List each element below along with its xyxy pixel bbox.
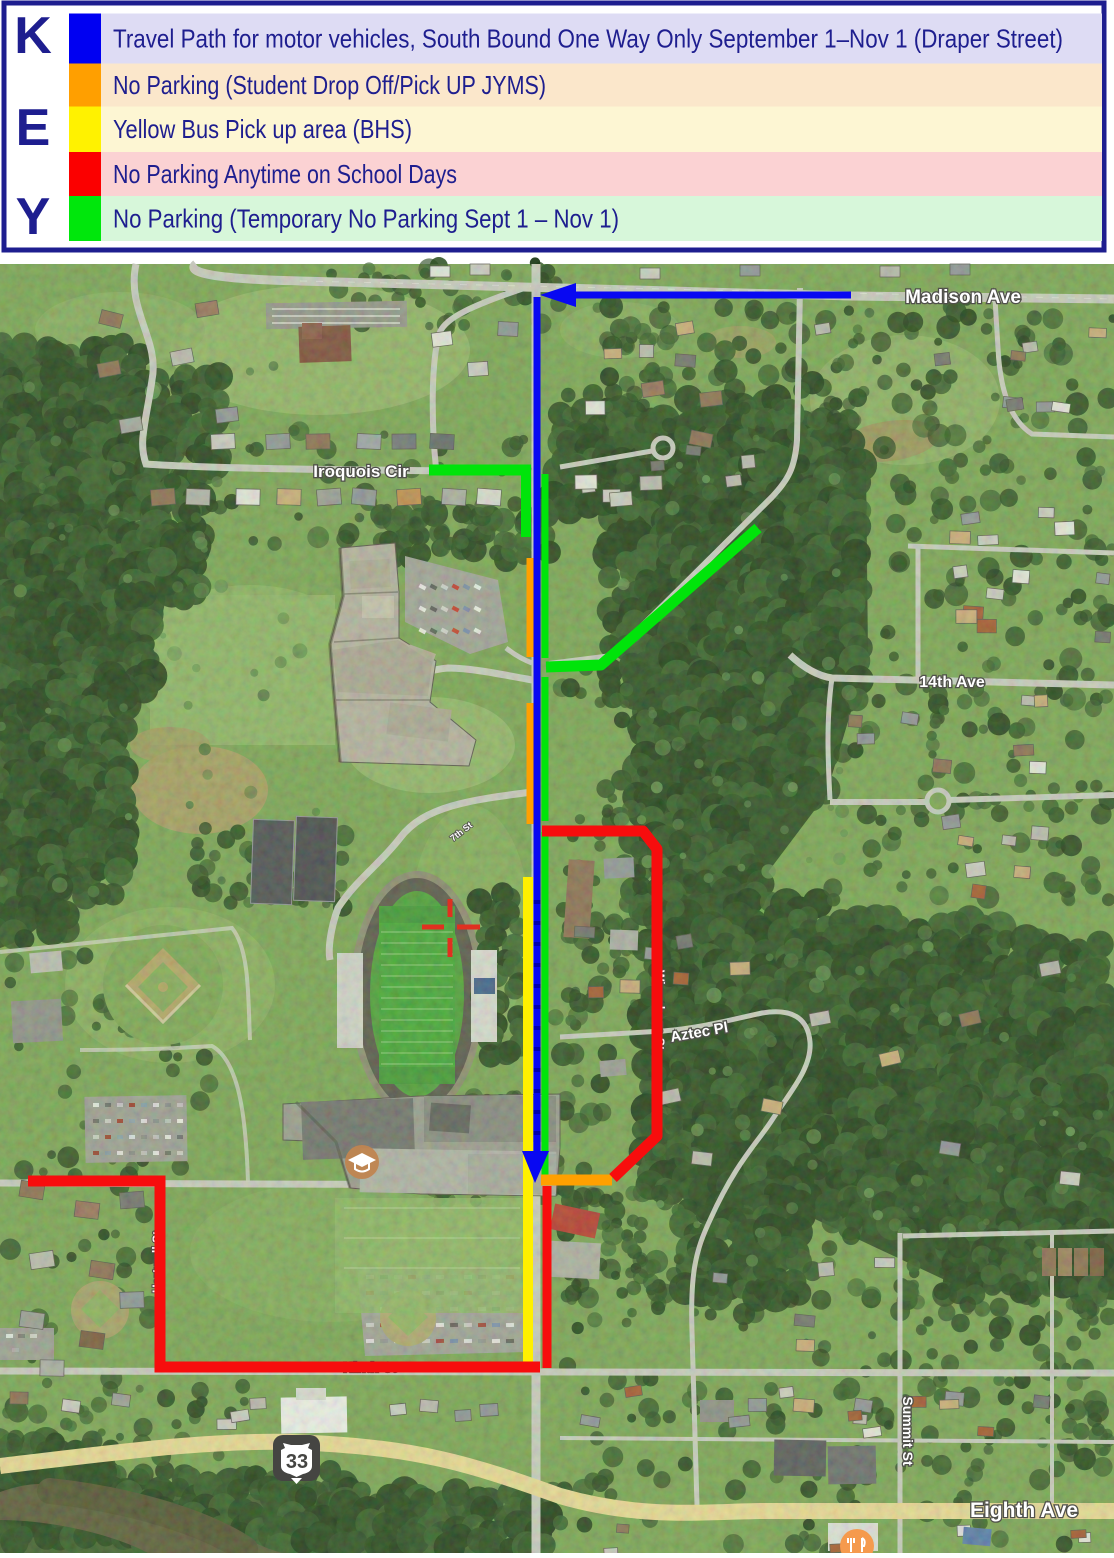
svg-text:Madison Ave: Madison Ave [905,287,1021,308]
svg-text:Y: Y [16,188,51,246]
svg-text:No Parking (Student Drop Off/P: No Parking (Student Drop Off/Pick UP JYM… [113,70,546,100]
svg-text:Travel Path for motor vehicles: Travel Path for motor vehicles, South Bo… [113,24,1063,54]
svg-text:Summit St: Summit St [900,1396,916,1466]
svg-text:No Parking Anytime on School D: No Parking Anytime on School Days [113,159,457,189]
svg-text:Yellow Bus Pick up area (BHS): Yellow Bus Pick up area (BHS) [113,114,412,144]
svg-text:Iroquois Cir: Iroquois Cir [313,462,409,481]
svg-text:Eighth Ave: Eighth Ave [970,1499,1078,1522]
svg-text:33: 33 [286,1451,308,1473]
svg-text:No Parking (Temporary No Parki: No Parking (Temporary No Parking Sept 1 … [113,204,619,234]
svg-text:14th Ave: 14th Ave [919,674,985,691]
svg-text:E: E [16,99,51,157]
svg-text:K: K [14,7,52,65]
